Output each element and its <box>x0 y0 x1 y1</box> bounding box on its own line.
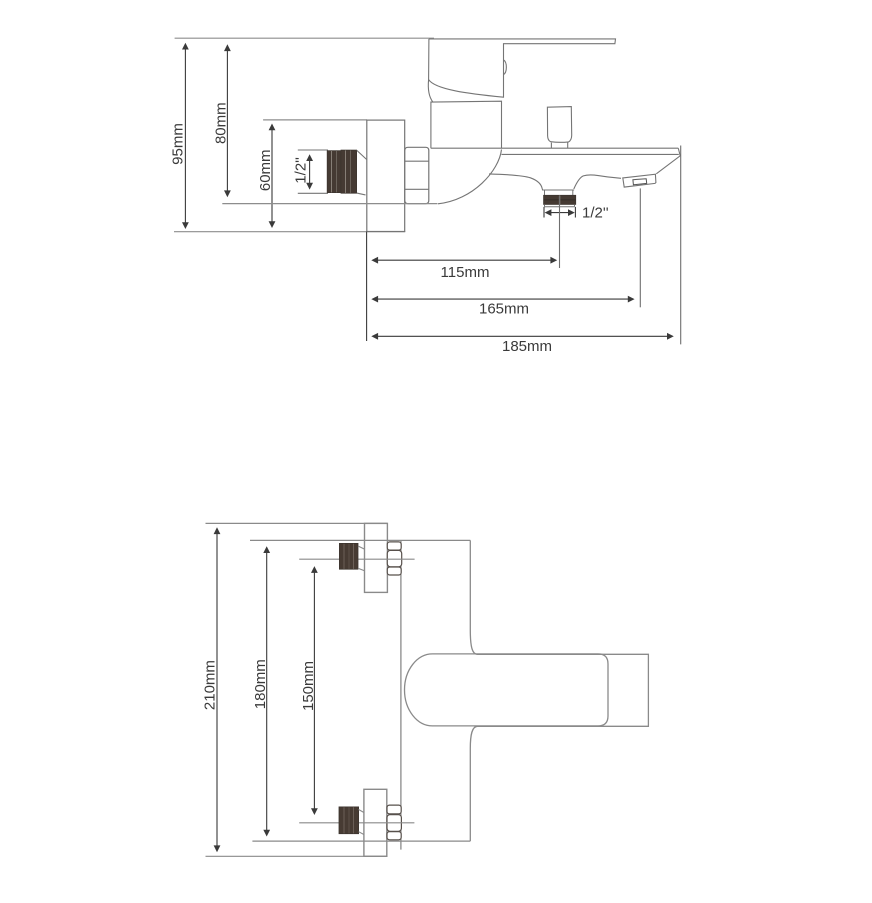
svg-text:1/2'': 1/2'' <box>292 157 309 184</box>
svg-text:1/2'': 1/2'' <box>582 205 609 222</box>
svg-text:150mm: 150mm <box>300 661 317 711</box>
svg-text:185mm: 185mm <box>502 338 552 355</box>
svg-text:95mm: 95mm <box>169 123 186 165</box>
svg-text:80mm: 80mm <box>212 102 229 144</box>
svg-text:60mm: 60mm <box>257 149 274 191</box>
svg-text:165mm: 165mm <box>479 301 529 318</box>
svg-text:210mm: 210mm <box>201 660 218 710</box>
svg-text:180mm: 180mm <box>252 659 269 709</box>
svg-text:115mm: 115mm <box>441 264 490 281</box>
